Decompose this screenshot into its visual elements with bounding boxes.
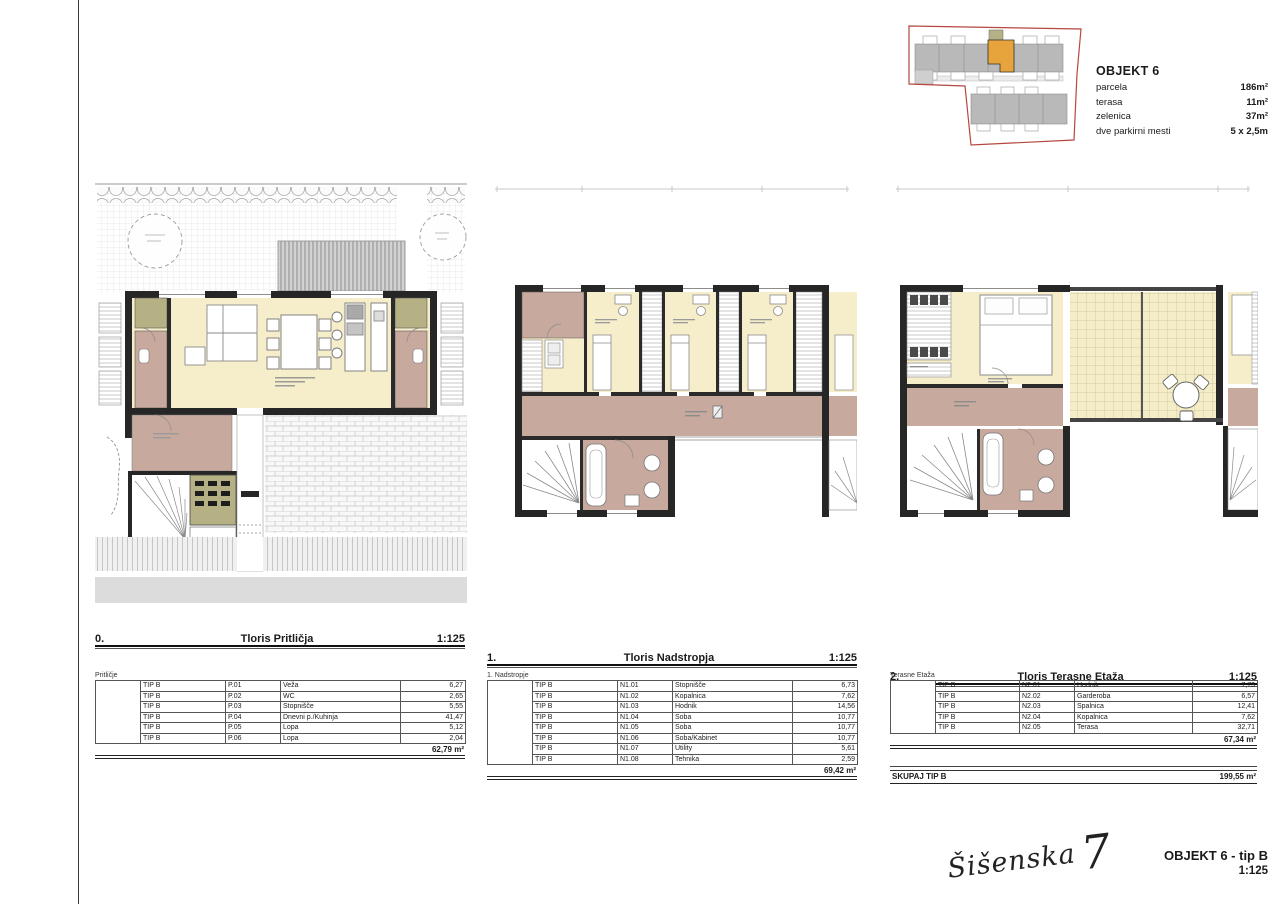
cell-area: 10,77 xyxy=(793,723,858,734)
plan-title: Tloris Nadstropja xyxy=(531,652,807,664)
cell-name: Stopnišče xyxy=(673,681,793,692)
site-info-row: dve parkirni mesti 5 x 2,5m xyxy=(1096,125,1268,140)
site-info-row: zelenica 37m² xyxy=(1096,110,1268,125)
plan-title-first: 1. Tloris Nadstropja 1:125 xyxy=(487,647,857,666)
room-table: TIP BP.01Veža6,27TIP BP.02WC2,65TIP BP.0… xyxy=(95,680,466,744)
dimension-line xyxy=(495,186,849,192)
table-floor-label: 1. Nadstropje xyxy=(487,672,857,679)
summary-label: SKUPAJ TIP B xyxy=(892,772,946,781)
footer-object-label: OBJEKT 6 - tip B xyxy=(1100,848,1268,863)
site-info-value: 11m² xyxy=(1246,96,1268,111)
roof-terrace xyxy=(1070,285,1223,425)
neighbor-sliver xyxy=(829,292,857,510)
cell-tip: TIP B xyxy=(936,681,1020,692)
site-info-row: terasa 11m² xyxy=(1096,96,1268,111)
site-info-value: 5 x 2,5m xyxy=(1231,125,1269,140)
footer-title-block: OBJEKT 6 - tip B 1:125 xyxy=(1100,848,1268,877)
plan-scale: 1:125 xyxy=(415,633,465,645)
table-row: TIP BP.06Lopa2,04 xyxy=(96,733,466,744)
floor-plan-first xyxy=(487,185,857,517)
cell-code: P.02 xyxy=(226,691,281,702)
site-buildings xyxy=(915,30,1067,131)
cell-area: 14,56 xyxy=(793,702,858,713)
paver-band xyxy=(95,537,467,571)
pergola xyxy=(278,241,405,291)
cell-name: Spalnica xyxy=(1075,702,1193,713)
site-info-row: parcela 186m² xyxy=(1096,81,1268,96)
cell-name: Dnevni p./Kuhinja xyxy=(281,712,401,723)
cell-name: Soba/Kabinet xyxy=(673,733,793,744)
table-row: TIP BN2.04Kopalnica7,62 xyxy=(891,712,1258,723)
cell-area: 12,41 xyxy=(1193,702,1258,713)
stairs-bath-block xyxy=(515,436,675,517)
plan-number: 0. xyxy=(95,633,139,645)
site-info-value: 37m² xyxy=(1246,110,1268,125)
dimension-line xyxy=(896,186,1250,192)
cell-area: 2,65 xyxy=(401,691,466,702)
site-info-block: OBJEKT 6 parcela 186m² terasa 11m² zelen… xyxy=(1096,64,1268,139)
site-object-title: OBJEKT 6 xyxy=(1096,64,1268,78)
table-row: TIP BN1.03Hodnik14,56 xyxy=(488,702,858,713)
cell-area: 10,77 xyxy=(793,712,858,723)
cell-tip: TIP B xyxy=(533,754,618,765)
table-floor-label: Terasne Etaža xyxy=(890,672,1257,679)
cell-name: Lopa xyxy=(281,733,401,744)
table-row: TIP BN2.03Spalnica12,41 xyxy=(891,702,1258,713)
entry-hall xyxy=(132,415,232,471)
plan-number: 1. xyxy=(487,652,531,664)
bush xyxy=(107,437,120,515)
cell-name: Veža xyxy=(281,681,401,692)
cell-name: Hodnik xyxy=(673,702,793,713)
cell-tip: TIP B xyxy=(533,744,618,755)
plan-sheet: OBJEKT 6 parcela 186m² terasa 11m² zelen… xyxy=(0,0,1280,904)
cell-code: N1.07 xyxy=(618,744,673,755)
stairs-bath-block xyxy=(900,426,1070,517)
cell-name: Soba xyxy=(673,712,793,723)
tree xyxy=(420,214,466,260)
total-rule xyxy=(890,745,1257,749)
cell-area: 5,55 xyxy=(401,702,466,713)
wardrobe xyxy=(907,292,951,377)
summary-rule xyxy=(890,766,1257,767)
cell-tip: TIP B xyxy=(141,733,226,744)
spacer-cell xyxy=(96,681,141,744)
table-row: TIP BN2.02Garderoba6,57 xyxy=(891,691,1258,702)
site-info-value: 186m² xyxy=(1241,81,1268,96)
cell-name: Kopalnica xyxy=(673,691,793,702)
cell-code: N1.02 xyxy=(618,691,673,702)
floor-plan-ground xyxy=(95,181,467,618)
page-edge-rule xyxy=(78,0,79,904)
cell-code: N1.01 xyxy=(618,681,673,692)
cell-area: 32,71 xyxy=(1193,723,1258,734)
area-table-terrace: Terasne Etaža TIP BN2.01Hodnik7,73TIP BN… xyxy=(890,672,1257,749)
cell-code: P.05 xyxy=(226,723,281,734)
cell-code: P.06 xyxy=(226,733,281,744)
cell-name: Soba xyxy=(673,723,793,734)
cell-area: 6,73 xyxy=(793,681,858,692)
table-row: TIP BN1.05Soba10,77 xyxy=(488,723,858,734)
table-row: TIP BN1.08Tehnika2,59 xyxy=(488,754,858,765)
cell-tip: TIP B xyxy=(533,691,618,702)
cell-area: 5,61 xyxy=(793,744,858,755)
plan-scale: 1:125 xyxy=(807,652,857,664)
table-row: TIP BN1.06Soba/Kabinet10,77 xyxy=(488,733,858,744)
site-info-label: dve parkirni mesti xyxy=(1096,125,1170,140)
cell-name: Lopa xyxy=(281,723,401,734)
cell-tip: TIP B xyxy=(936,723,1020,734)
cell-code: P.01 xyxy=(226,681,281,692)
hall xyxy=(522,392,822,440)
cell-name: Stopnišče xyxy=(281,702,401,713)
table-row: TIP BN2.05Terasa32,71 xyxy=(891,723,1258,734)
terrace-table xyxy=(1173,382,1199,408)
site-green-roof xyxy=(989,30,1003,40)
stairs-block xyxy=(130,473,238,545)
cell-name: Hodnik xyxy=(1075,681,1193,692)
cell-area: 7,62 xyxy=(793,691,858,702)
cell-code: N2.03 xyxy=(1020,702,1075,713)
table-floor-label: Pritličje xyxy=(95,672,465,679)
table-total: 69,42 m² xyxy=(487,765,857,775)
room-table: TIP BN2.01Hodnik7,73TIP BN2.02Garderoba6… xyxy=(890,680,1258,734)
neighbor-sliver xyxy=(1223,292,1258,517)
cell-area: 5,12 xyxy=(401,723,466,734)
cell-area: 7,73 xyxy=(1193,681,1258,692)
brick-patio xyxy=(265,415,467,533)
cell-name: Utility xyxy=(673,744,793,755)
table-row: TIP BP.04Dnevni p./Kuhinja41,47 xyxy=(96,712,466,723)
spacer-cell xyxy=(488,681,533,765)
cell-code: N2.05 xyxy=(1020,723,1075,734)
cell-tip: TIP B xyxy=(141,691,226,702)
cell-area: 2,59 xyxy=(793,754,858,765)
table-row: TIP BP.02WC2,65 xyxy=(96,691,466,702)
cell-code: N1.04 xyxy=(618,712,673,723)
site-info-label: zelenica xyxy=(1096,110,1131,125)
road-band xyxy=(95,577,467,603)
cell-code: N2.01 xyxy=(1020,681,1075,692)
floor-plan-terrace xyxy=(888,185,1258,522)
footer-scale: 1:125 xyxy=(1100,865,1268,877)
cell-area: 10,77 xyxy=(793,733,858,744)
cell-name: WC xyxy=(281,691,401,702)
cell-tip: TIP B xyxy=(533,712,618,723)
summary-value: 199,55 m² xyxy=(1220,772,1256,781)
table-total: 62,79 m² xyxy=(95,744,465,754)
area-table-first: 1. Nadstropje TIP BN1.01Stopnišče6,73TIP… xyxy=(487,672,857,780)
site-info-label: terasa xyxy=(1096,96,1122,111)
cell-code: N1.08 xyxy=(618,754,673,765)
table-row: TIP BN1.04Soba10,77 xyxy=(488,712,858,723)
cell-code: N1.03 xyxy=(618,702,673,713)
site-plan-svg xyxy=(893,16,1098,158)
cell-tip: TIP B xyxy=(141,712,226,723)
cell-name: Kopalnica xyxy=(1075,712,1193,723)
cell-code: N1.06 xyxy=(618,733,673,744)
cell-area: 6,57 xyxy=(1193,691,1258,702)
site-info-label: parcela xyxy=(1096,81,1127,96)
table-row: TIP BN1.02Kopalnica7,62 xyxy=(488,691,858,702)
signature-name: Šišenska xyxy=(946,838,1077,884)
cell-code: N1.05 xyxy=(618,723,673,734)
area-table-ground: Pritličje TIP BP.01Veža6,27TIP BP.02WC2,… xyxy=(95,672,465,759)
cell-tip: TIP B xyxy=(533,702,618,713)
room-table: TIP BN1.01Stopnišče6,73TIP BN1.02Kopalni… xyxy=(487,680,858,765)
cell-name: Tehnika xyxy=(673,754,793,765)
table-row: TIP BN1.07Utility5,61 xyxy=(488,744,858,755)
table-total: 67,34 m² xyxy=(890,734,1257,744)
table-row: TIP BP.03Stopnišče5,55 xyxy=(96,702,466,713)
cell-tip: TIP B xyxy=(533,723,618,734)
garden xyxy=(95,184,467,293)
plan-title: Tloris Pritličja xyxy=(139,633,415,645)
cell-tip: TIP B xyxy=(936,691,1020,702)
cell-name: Garderoba xyxy=(1075,691,1193,702)
cell-name: Terasa xyxy=(1075,723,1193,734)
plan-title-ground: 0. Tloris Pritličja 1:125 xyxy=(95,628,465,647)
cell-area: 2,04 xyxy=(401,733,466,744)
cell-tip: TIP B xyxy=(141,702,226,713)
table-row: TIP BN2.01Hodnik7,73 xyxy=(891,681,1258,692)
summary-band: SKUPAJ TIP B 199,55 m² xyxy=(890,766,1257,784)
spacer-cell xyxy=(891,681,936,734)
total-rule xyxy=(487,776,857,780)
bed xyxy=(980,295,1052,382)
table-row: TIP BP.05Lopa5,12 xyxy=(96,723,466,734)
table-row: TIP BP.01Veža6,27 xyxy=(96,681,466,692)
cell-tip: TIP B xyxy=(936,712,1020,723)
cell-code: P.03 xyxy=(226,702,281,713)
cell-tip: TIP B xyxy=(141,681,226,692)
cell-tip: TIP B xyxy=(936,702,1020,713)
cell-area: 6,27 xyxy=(401,681,466,692)
total-rule xyxy=(95,755,465,759)
table-row: TIP BN1.01Stopnišče6,73 xyxy=(488,681,858,692)
summary-row: SKUPAJ TIP B 199,55 m² xyxy=(890,770,1257,784)
cell-code: P.04 xyxy=(226,712,281,723)
cell-area: 7,62 xyxy=(1193,712,1258,723)
cell-area: 41,47 xyxy=(401,712,466,723)
cell-code: N2.04 xyxy=(1020,712,1075,723)
cell-tip: TIP B xyxy=(533,733,618,744)
cell-tip: TIP B xyxy=(533,681,618,692)
cell-code: N2.02 xyxy=(1020,691,1075,702)
cell-tip: TIP B xyxy=(141,723,226,734)
